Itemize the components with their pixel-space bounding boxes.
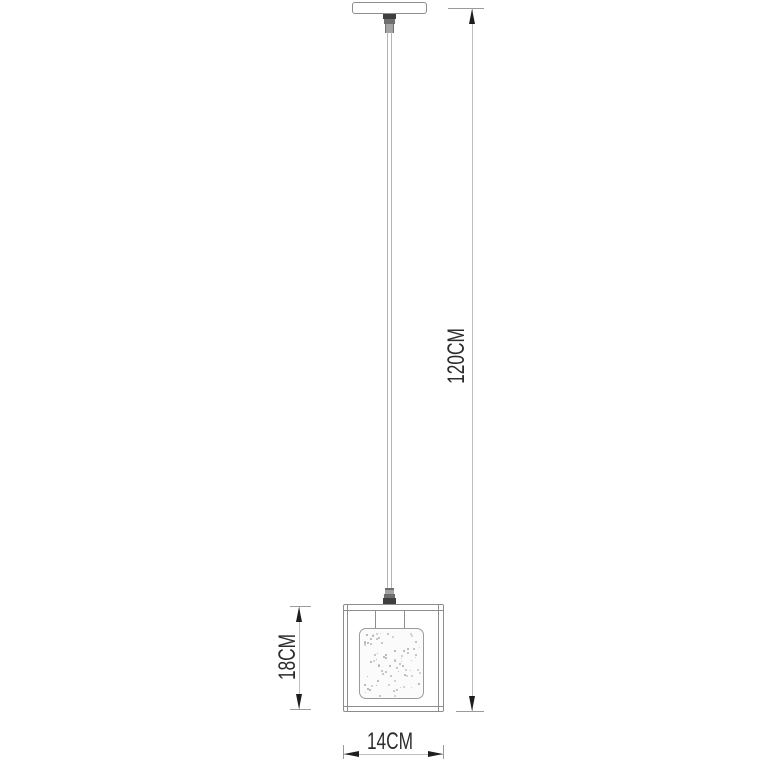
arrow-down-icon — [296, 694, 302, 709]
pendant-lamp-dimension-diagram: 120CM 18CM 14CM — [0, 0, 767, 767]
dim-label-overall-drop: 120CM — [445, 317, 469, 394]
dim-overall-drop-tick-bottom — [456, 711, 484, 712]
arrow-left-icon — [344, 751, 359, 757]
glass-hanger-left — [375, 611, 376, 628]
glass-hanger-right — [404, 611, 405, 628]
arrow-up-icon — [469, 9, 475, 24]
shade-frame-inner-line-top — [343, 610, 444, 611]
shade-frame-inner-line-bottom — [343, 706, 444, 707]
dim-shade-height-tick-bottom — [290, 709, 311, 710]
dim-label-shade-height: 18CM — [276, 625, 300, 689]
arrow-down-icon — [469, 696, 475, 711]
dim-overall-drop-tick-top — [448, 8, 484, 9]
dim-label-shade-height-text: 18CM — [276, 634, 300, 680]
suspension-cord — [387, 32, 392, 589]
glass-shade — [359, 628, 424, 699]
dim-label-shade-width-text: 14CM — [367, 730, 413, 754]
arrow-right-icon — [428, 751, 443, 757]
shade-frame-inner-line-left — [347, 604, 348, 712]
dim-shade-width-tick-right — [443, 745, 444, 759]
dim-overall-drop-line — [472, 9, 473, 711]
dim-label-shade-width: 14CM — [358, 730, 422, 754]
dim-label-overall-drop-text: 120CM — [445, 328, 469, 384]
shade-frame-inner-line-right — [438, 604, 439, 712]
arrow-up-icon — [296, 607, 302, 622]
ceiling-plate — [352, 2, 427, 14]
